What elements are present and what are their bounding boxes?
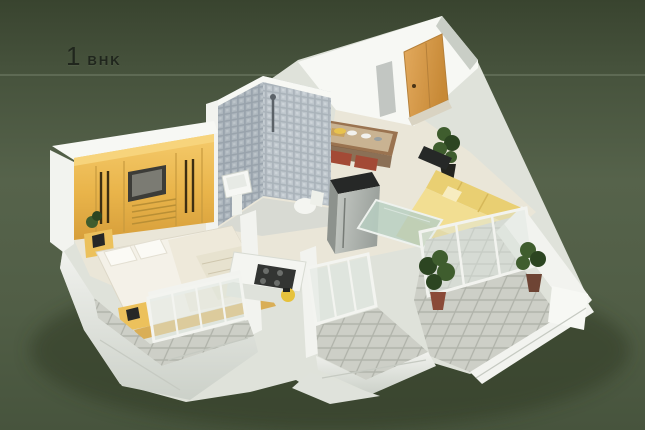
plate: [361, 134, 371, 139]
bedroom-left-wall: [50, 150, 74, 252]
counter-appliance-detail: [283, 288, 290, 292]
door-handle: [412, 84, 416, 88]
bedroom-plant: [92, 211, 102, 221]
pot: [374, 137, 382, 141]
plate: [347, 131, 357, 136]
toilet-tank: [310, 190, 324, 207]
fruit-bowl: [334, 128, 346, 134]
floor-plan-3d-render: [0, 0, 645, 430]
scene-background: 1 BHK: [0, 0, 645, 430]
bathroom: [206, 76, 331, 236]
shower-head: [270, 94, 276, 100]
washbasin-pedestal: [232, 194, 242, 216]
